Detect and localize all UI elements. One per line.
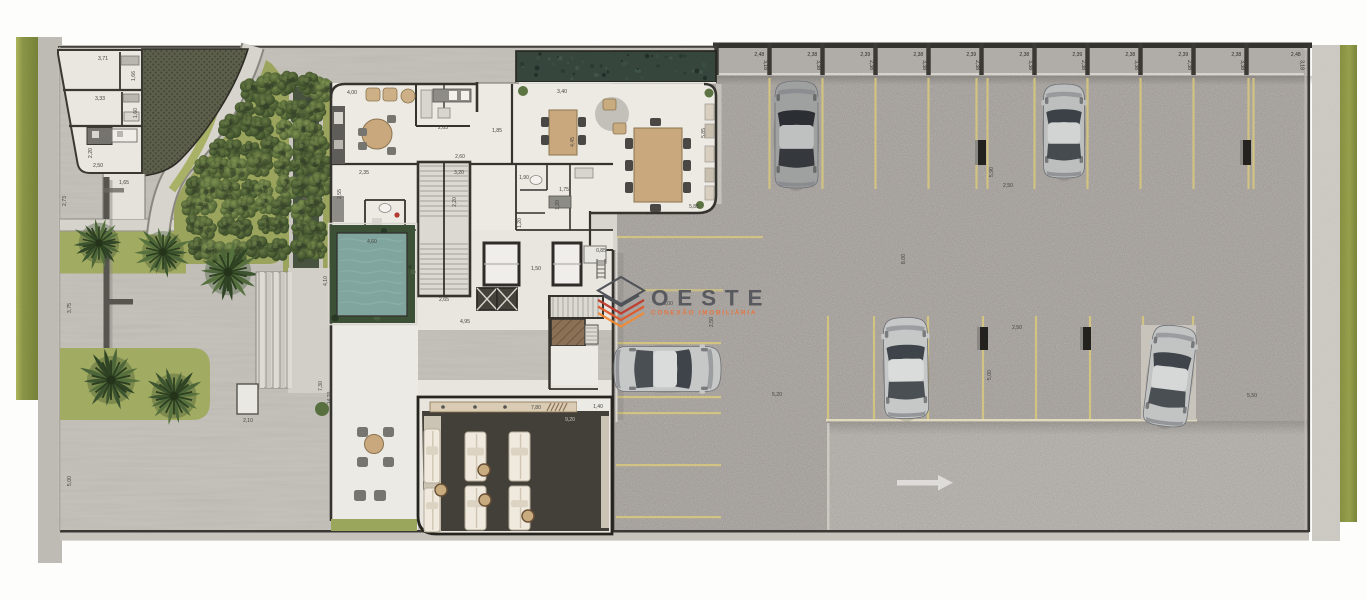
svg-text:4,10: 4,10 (323, 276, 329, 286)
svg-text:2,38: 2,38 (1186, 60, 1192, 70)
svg-text:9,20: 9,20 (565, 417, 575, 423)
svg-text:1,20: 1,20 (517, 218, 523, 228)
svg-text:CONEXÃO IMOBILIÁRIA: CONEXÃO IMOBILIÁRIA (651, 308, 757, 317)
svg-text:2,50: 2,50 (709, 317, 715, 327)
svg-text:2,38: 2,38 (1231, 52, 1241, 58)
svg-text:3,38: 3,38 (921, 60, 927, 70)
svg-text:2,10: 2,10 (243, 418, 253, 424)
svg-text:2,55: 2,55 (337, 189, 343, 199)
svg-text:2,39: 2,39 (966, 52, 976, 58)
svg-text:1,75: 1,75 (559, 187, 569, 193)
svg-text:3,75: 3,75 (67, 303, 73, 313)
svg-text:2,48: 2,48 (754, 52, 764, 58)
svg-text:2,50: 2,50 (1003, 183, 1013, 189)
svg-text:1,40: 1,40 (593, 404, 603, 410)
svg-text:2,38: 2,38 (1019, 52, 1029, 58)
svg-text:1,60: 1,60 (133, 108, 139, 118)
svg-text:3,20: 3,20 (454, 170, 464, 176)
svg-text:2,39: 2,39 (1178, 52, 1188, 58)
svg-text:2,38: 2,38 (868, 60, 874, 70)
svg-text:2,38: 2,38 (807, 52, 817, 58)
svg-text:3,38: 3,38 (1027, 60, 1033, 70)
svg-text:0,85: 0,85 (596, 248, 606, 254)
svg-text:2,50: 2,50 (93, 163, 103, 169)
svg-text:3,40: 3,40 (557, 89, 567, 95)
svg-text:5,00: 5,00 (67, 476, 73, 486)
svg-text:2,38: 2,38 (1125, 52, 1135, 58)
svg-text:2,39: 2,39 (1072, 52, 1082, 58)
svg-text:2,20: 2,20 (452, 197, 458, 207)
svg-text:2,48: 2,48 (1291, 52, 1301, 58)
svg-text:8,00: 8,00 (901, 254, 907, 264)
svg-text:5,20: 5,20 (772, 392, 782, 398)
svg-text:1,90: 1,90 (519, 175, 529, 181)
svg-text:2,60: 2,60 (455, 154, 465, 160)
svg-text:5,00: 5,00 (987, 370, 993, 380)
svg-text:1,65: 1,65 (119, 180, 129, 186)
svg-text:2,39: 2,39 (860, 52, 870, 58)
svg-text:2,50: 2,50 (1012, 325, 1022, 331)
svg-text:OESTE: OESTE (651, 286, 771, 311)
svg-text:2,20: 2,20 (88, 148, 94, 158)
svg-text:4,95: 4,95 (460, 319, 470, 325)
svg-text:2,35: 2,35 (359, 170, 369, 176)
svg-text:3,18: 3,18 (762, 60, 768, 70)
svg-text:3,38: 3,38 (1239, 60, 1245, 70)
svg-text:3,38: 3,38 (815, 60, 821, 70)
svg-text:2,65: 2,65 (439, 297, 449, 303)
svg-text:2,73: 2,73 (62, 196, 68, 206)
svg-text:1,20: 1,20 (555, 200, 561, 210)
svg-text:3,18: 3,18 (1298, 60, 1304, 70)
svg-text:2,38: 2,38 (1080, 60, 1086, 70)
svg-text:3,71: 3,71 (98, 56, 108, 62)
svg-text:4,00: 4,00 (347, 90, 357, 96)
svg-text:5,90: 5,90 (989, 167, 995, 177)
svg-text:2,38: 2,38 (974, 60, 980, 70)
svg-text:1,66: 1,66 (131, 71, 137, 81)
svg-text:3,33: 3,33 (95, 96, 105, 102)
svg-text:7,30: 7,30 (318, 381, 324, 391)
svg-text:7,80: 7,80 (531, 405, 541, 411)
svg-text:1,85: 1,85 (492, 128, 502, 134)
svg-text:4,60: 4,60 (367, 239, 377, 245)
svg-text:2,38: 2,38 (913, 52, 923, 58)
svg-text:3,38: 3,38 (1133, 60, 1139, 70)
svg-text:5,50: 5,50 (1247, 393, 1257, 399)
svg-text:2,65: 2,65 (438, 125, 448, 131)
svg-text:1,50: 1,50 (531, 266, 541, 272)
svg-text:5,85: 5,85 (701, 128, 707, 138)
svg-text:5,85: 5,85 (689, 204, 699, 210)
svg-text:4,45: 4,45 (570, 137, 576, 147)
